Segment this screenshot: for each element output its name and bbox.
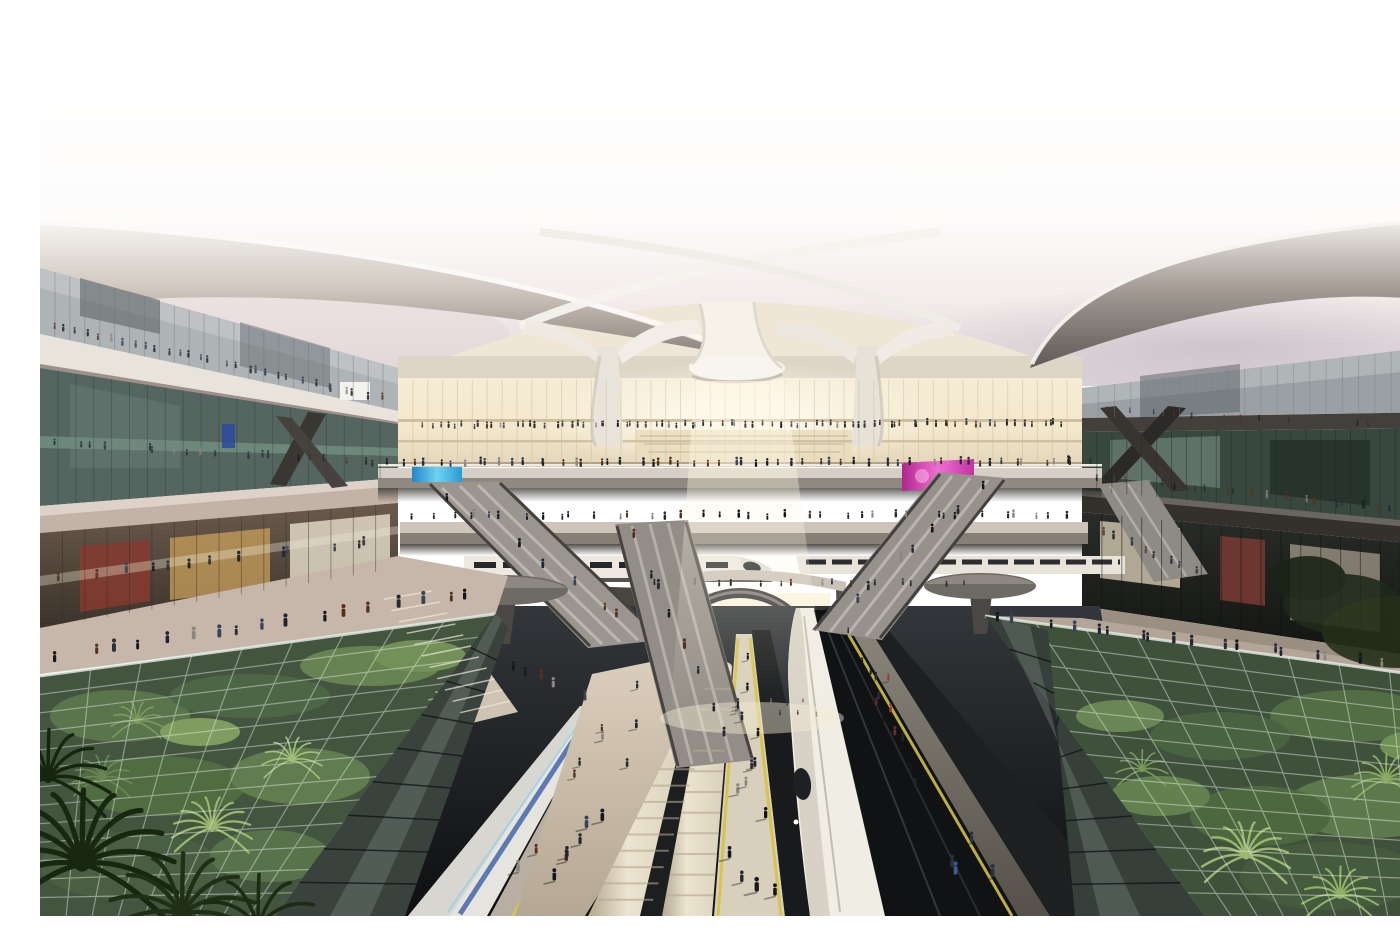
led-screen-blue (412, 467, 462, 482)
sunlight-pool (660, 702, 844, 734)
led-glow (915, 469, 929, 483)
station-rendering-canvas: Futuristic high-speed railway terminal —… (40, 16, 1400, 916)
architectural-rendering: Futuristic high-speed railway terminal —… (40, 16, 1400, 916)
poster-blue-left (222, 424, 235, 448)
billboard-white-left (340, 382, 370, 400)
